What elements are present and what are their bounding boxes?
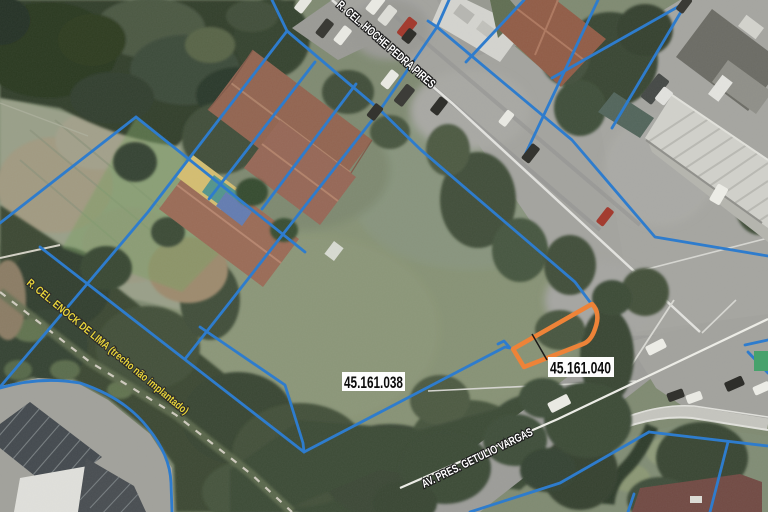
- svg-text:45.161.038: 45.161.038: [344, 374, 403, 392]
- svg-text:45.161.040: 45.161.040: [550, 360, 611, 378]
